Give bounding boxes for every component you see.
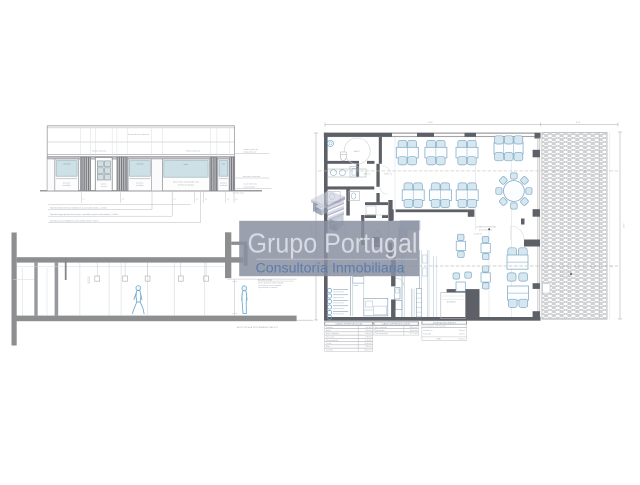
- svg-text:persiana: persiana: [63, 182, 70, 184]
- svg-text:CUADRO SUPERFICIES UTILES: CUADRO SUPERFICIES UTILES: [335, 323, 363, 326]
- svg-text:enrollable: enrollable: [220, 185, 228, 187]
- svg-text:Nivel del interior del local (: Nivel del interior del local (medido en …: [50, 206, 107, 209]
- svg-text:sup. 84 m2: sup. 84 m2: [474, 233, 482, 235]
- svg-text:CUADRO SUPERFICIES CONSTR.: CUADRO SUPERFICIES CONSTR.: [382, 323, 411, 326]
- svg-text:Vestibulo: Vestibulo: [326, 326, 333, 329]
- svg-text:Barra: Barra: [326, 345, 330, 348]
- svg-text:Consultoría Inmobiliaria: Consultoría Inmobiliaria: [256, 261, 406, 276]
- svg-text:177,70 m2: 177,70 m2: [409, 333, 417, 335]
- svg-text:18,70: 18,70: [624, 223, 626, 229]
- svg-text:zocalo inferior de: zocalo inferior de: [243, 183, 256, 186]
- svg-text:ACCESO LOCAL: ACCESO LOCAL: [258, 279, 272, 282]
- svg-text:cocina: cocina: [354, 285, 359, 287]
- svg-text:Nivel del espejo privado de la: Nivel del espejo privado de la terraza -…: [50, 213, 118, 216]
- svg-text:1.2: 1.2: [205, 199, 207, 201]
- svg-text:1.2: 1.2: [235, 199, 237, 201]
- svg-text:Nivel de la acera (medido en p: Nivel de la acera (medido en punto medio…: [50, 219, 99, 222]
- svg-text:ALMACEN: ALMACEN: [447, 301, 456, 304]
- svg-text:1.2: 1.2: [122, 199, 124, 201]
- svg-text:84,15 m2: 84,15 m2: [364, 350, 371, 352]
- svg-text:Sup. construida: Sup. construida: [375, 326, 387, 329]
- svg-text:salon: salon: [184, 164, 189, 166]
- svg-text:uso exclusivo: uso exclusivo: [560, 276, 570, 278]
- svg-text:Aseo 1: Aseo 1: [326, 329, 331, 332]
- svg-text:chapa plegada: chapa plegada: [243, 186, 255, 188]
- svg-text:Rotulo comercial: Rotulo comercial: [186, 149, 201, 152]
- svg-text:ASEO 1: ASEO 1: [354, 150, 361, 153]
- svg-text:persiana: persiana: [136, 182, 143, 184]
- svg-text:nivel de acera: nivel de acera: [233, 192, 244, 195]
- svg-text:1.2: 1.2: [227, 199, 229, 201]
- svg-text:vinilo opaco traslucido: vinilo opaco traslucido: [243, 175, 260, 178]
- svg-text:Dist. aseos: Dist. aseos: [326, 336, 335, 339]
- svg-text:comedor: comedor: [63, 164, 71, 166]
- svg-text:(zona fumadores): (zona fumadores): [479, 229, 493, 232]
- svg-text:SECCION A-A POR BANDA PUBLICO: SECCION A-A POR BANDA PUBLICO: [237, 326, 279, 329]
- svg-text:JUSTIFICACION DE AFORO: JUSTIFICACION DE AFORO: [433, 321, 457, 324]
- svg-text:enrollable: enrollable: [63, 185, 71, 187]
- svg-text:perfileria de aluminio: perfileria de aluminio: [178, 183, 194, 186]
- svg-text:Sup. terraza: Sup. terraza: [375, 329, 384, 332]
- svg-text:sal.: sal.: [222, 164, 226, 166]
- svg-text:remate superior de: remate superior de: [243, 148, 258, 151]
- svg-text:puerta: puerta: [101, 183, 106, 186]
- svg-text:vidrio laminar seguridad fijo: vidrio laminar seguridad fijo sobre: [173, 181, 199, 184]
- svg-text:Comedor: Comedor: [326, 349, 333, 352]
- svg-text:1.2: 1.2: [196, 199, 198, 201]
- svg-text:Frente de local comercial: Frente de local comercial: [128, 133, 150, 136]
- svg-text:Aseo 2 adaptado: Aseo 2 adaptado: [326, 332, 339, 335]
- svg-text:Grupo Portugal: Grupo Portugal: [248, 227, 418, 258]
- svg-text:Total computable: Total computable: [375, 332, 388, 335]
- svg-text:persiana: persiana: [220, 182, 227, 184]
- svg-text:chapa prelacada: chapa prelacada: [243, 151, 256, 154]
- svg-text:comedor: comedor: [136, 164, 144, 166]
- svg-text:DISTR.: DISTR.: [384, 173, 390, 175]
- svg-text:3,10: 3,10: [610, 266, 613, 268]
- svg-text:terraza privada: terraza privada: [560, 271, 572, 274]
- svg-text:1.2: 1.2: [173, 199, 175, 201]
- svg-text:segun detalle en memoria: segun detalle en memoria: [258, 286, 277, 289]
- svg-text:Rotulo comercial: Rotulo comercial: [92, 149, 107, 152]
- svg-text:COMEDOR PRINCIPAL: COMEDOR PRINCIPAL: [476, 226, 496, 229]
- svg-text:ASEO 2: ASEO 2: [364, 172, 371, 175]
- svg-text:enrollable: enrollable: [136, 185, 144, 187]
- svg-text:1.2: 1.2: [82, 199, 84, 201]
- svg-text:acceso: acceso: [101, 186, 107, 188]
- svg-text:12,49: 12,49: [427, 122, 433, 124]
